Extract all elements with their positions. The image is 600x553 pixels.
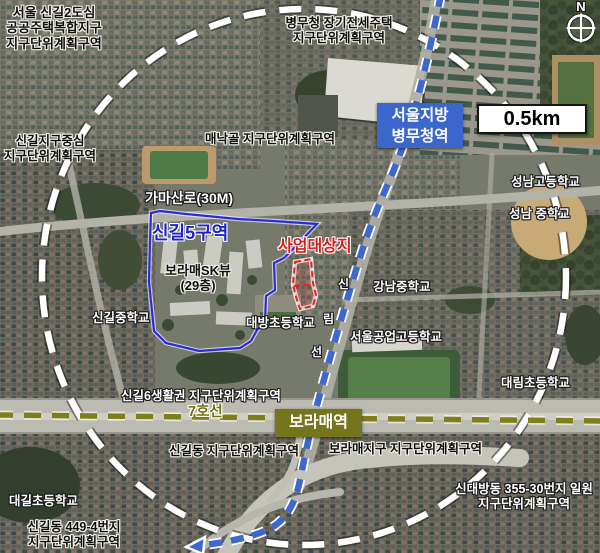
zone-label-singil5: 신길5구역 xyxy=(152,223,228,244)
district-label-maenakgol: 매낙골 지구단위계획구역 xyxy=(205,132,335,147)
district-label-singildong: 신길동 지구단위계획구역 xyxy=(169,444,299,459)
district-label-singil-center: 신길지구중심 지구단위계획구역 xyxy=(4,134,96,164)
line7-label: 7호선 xyxy=(188,404,223,421)
school-label-gangnam-middle: 강남중학교 xyxy=(373,280,431,295)
school-label-daerim-elem: 대림초등학교 xyxy=(501,376,570,391)
district-label-sindaebang: 신대방동 355-30번지 일원 지구단위계획구역 xyxy=(455,482,593,512)
compass-north-label: N xyxy=(576,0,585,14)
district-label-singil449: 신길동 449-4번지 지구단위계획구역 xyxy=(28,520,121,550)
school-label-singil-middle: 신길중학교 xyxy=(92,311,150,326)
district-label-singil6: 신길6생활권 지구단위계획구역 xyxy=(121,389,281,404)
school-label-seongnam-high: 성남고등학교 xyxy=(511,175,580,190)
sillim-line-arrowhead xyxy=(186,537,205,553)
sillim-line-char-3: 선 xyxy=(311,345,322,359)
sillim-line-route xyxy=(205,0,441,545)
project-site-label: 사업대상지 xyxy=(278,238,352,257)
school-label-seongnam-middle: 성남 중학교 xyxy=(509,207,570,222)
map-annotations xyxy=(0,0,600,553)
school-label-daebang-elem: 대방초등학교 xyxy=(246,316,315,331)
compass-icon xyxy=(567,14,596,43)
building-label-boramae-sk: 보라매SK뷰 (29층) xyxy=(165,263,231,294)
sillim-line-char-2: 림 xyxy=(323,312,334,326)
district-label-boramae-district: 보라매지구 지구단위계획구역 xyxy=(329,442,482,457)
school-label-daegil-elem: 대길초등학교 xyxy=(9,494,78,509)
district-label-byeongmu-housing: 병무청 장기전세주택 지구단위계획구역 xyxy=(286,16,393,46)
scale-bar: 0.5km xyxy=(477,104,587,134)
district-label-singil2: 서울 신길2도심 공공주택복합지구 지구단위계획구역 xyxy=(6,5,102,51)
school-label-seoul-tech-high: 서울공업고등학교 xyxy=(350,330,442,345)
map-canvas[interactable]: 서울 신길2도심 공공주택복합지구 지구단위계획구역 병무청 장기전세주택 지구… xyxy=(0,0,600,553)
road-label-gamasanro: 가마산로(30M) xyxy=(145,190,233,207)
station-badge-boramae: 보라매역 xyxy=(275,409,362,437)
station-badge-byeongmucheong: 서울지방 병무청역 xyxy=(377,103,463,148)
sillim-line-char-1: 신 xyxy=(338,277,349,291)
